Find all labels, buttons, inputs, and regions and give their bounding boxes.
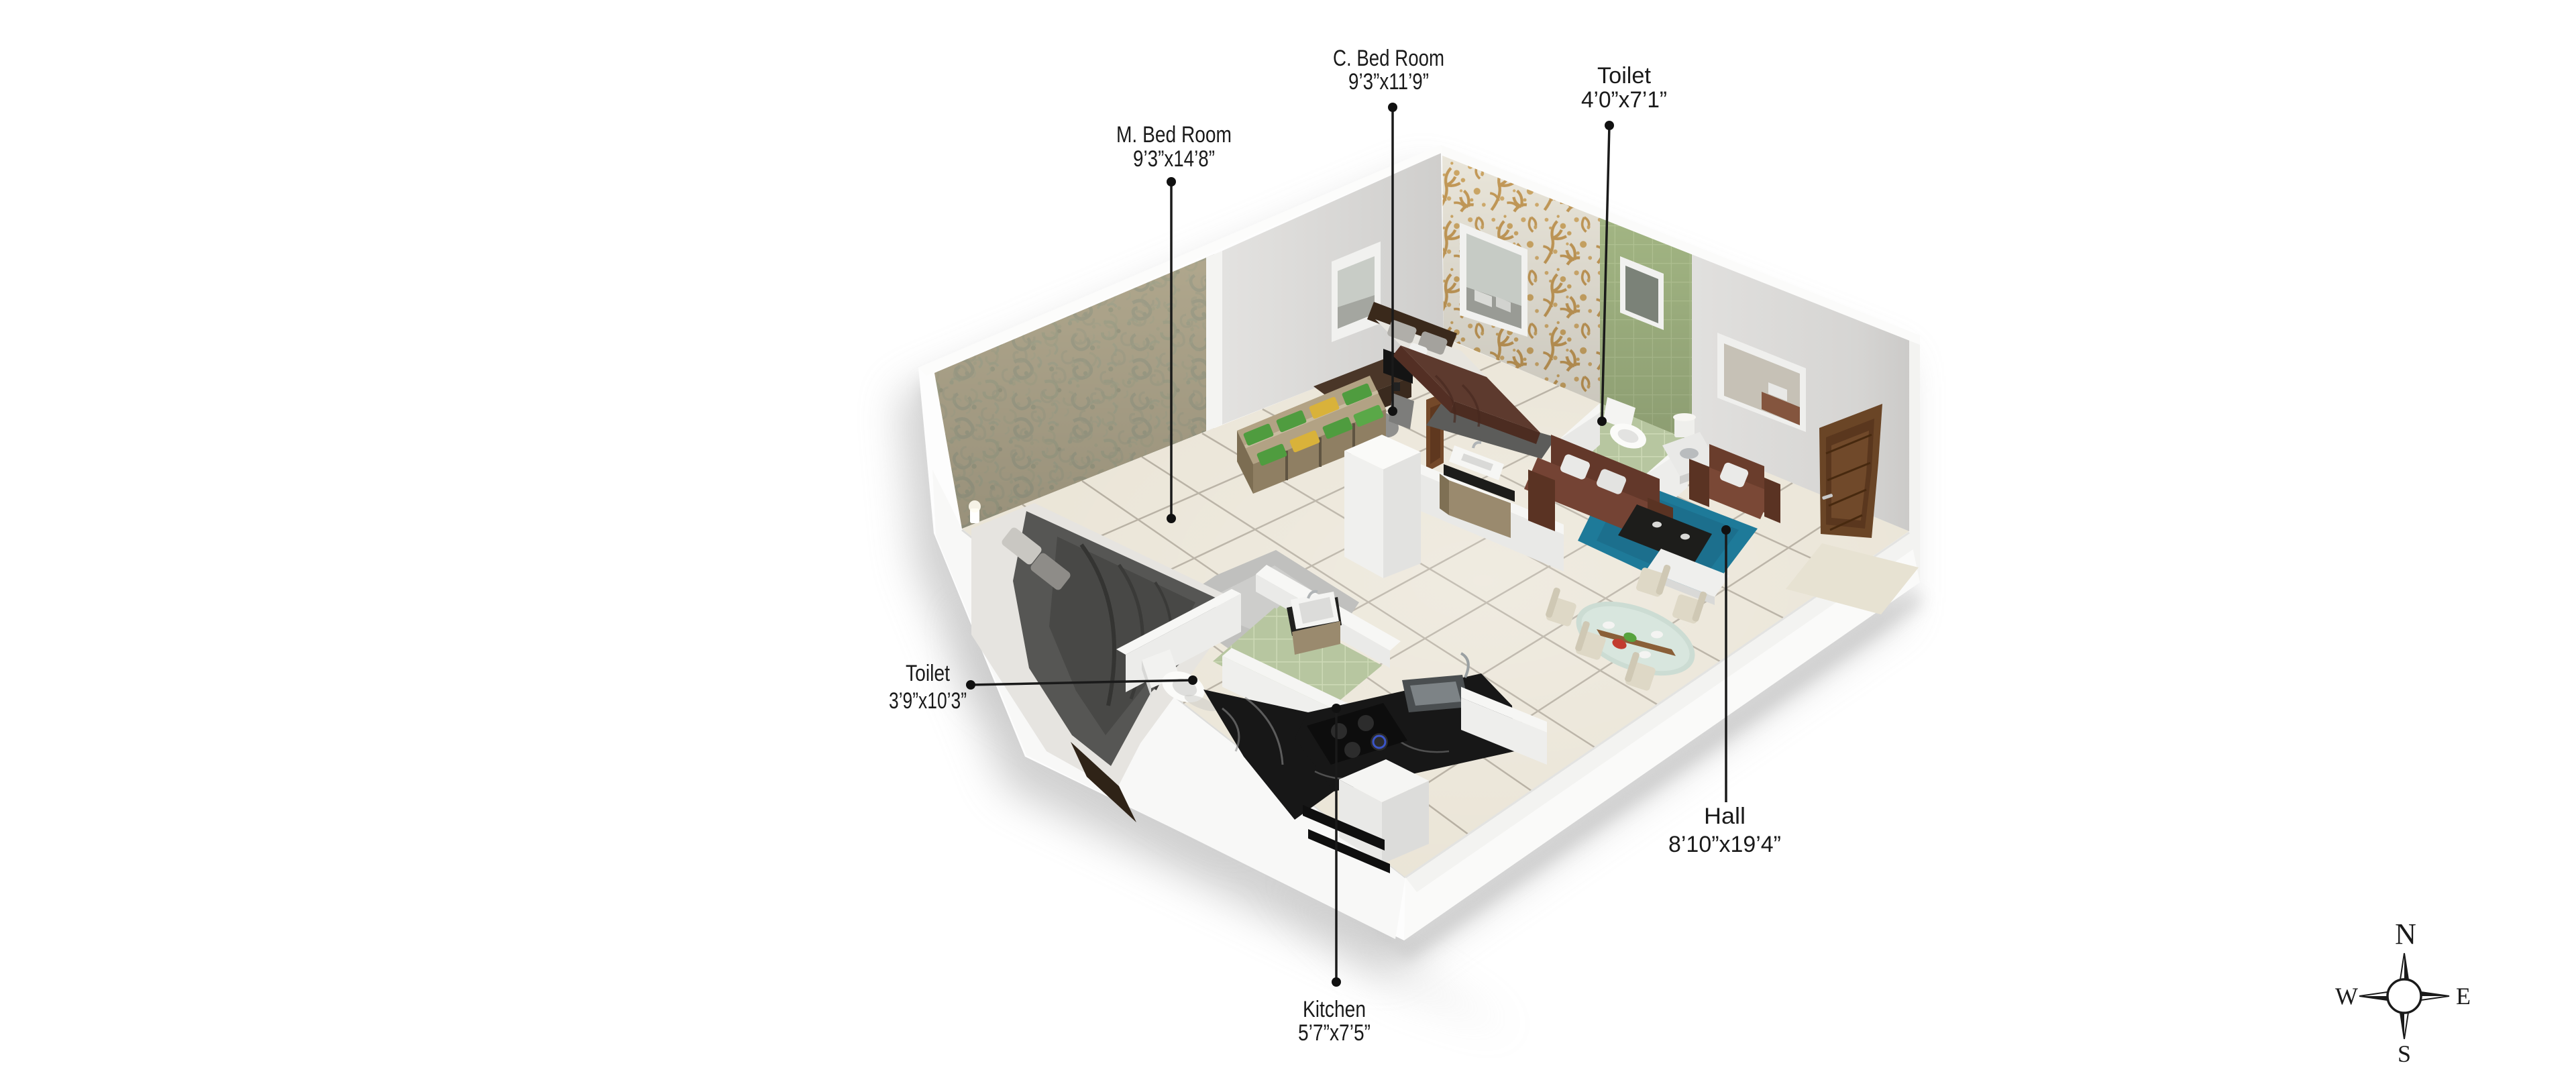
svg-text:3’9”x10’3”: 3’9”x10’3” [889,688,967,714]
svg-text:4’0”x7’1”: 4’0”x7’1” [1581,87,1667,113]
svg-text:E: E [2456,983,2471,1010]
svg-text:8’10”x19’4”: 8’10”x19’4” [1668,832,1781,857]
svg-text:5’7”x7’5”: 5’7”x7’5” [1298,1020,1371,1046]
svg-text:C. Bed Room: C. Bed Room [1333,46,1444,71]
svg-text:9’3”x11’9”: 9’3”x11’9” [1348,69,1429,95]
svg-text:Toilet: Toilet [1597,63,1652,89]
svg-text:M. Bed Room: M. Bed Room [1116,122,1232,148]
svg-text:S: S [2398,1040,2411,1067]
svg-text:W: W [2335,983,2358,1010]
svg-text:Kitchen: Kitchen [1303,997,1366,1022]
svg-text:9’3”x14’8”: 9’3”x14’8” [1133,146,1215,172]
svg-text:Hall: Hall [1704,804,1746,829]
svg-text:Toilet: Toilet [906,661,950,686]
svg-text:N: N [2395,918,2416,950]
